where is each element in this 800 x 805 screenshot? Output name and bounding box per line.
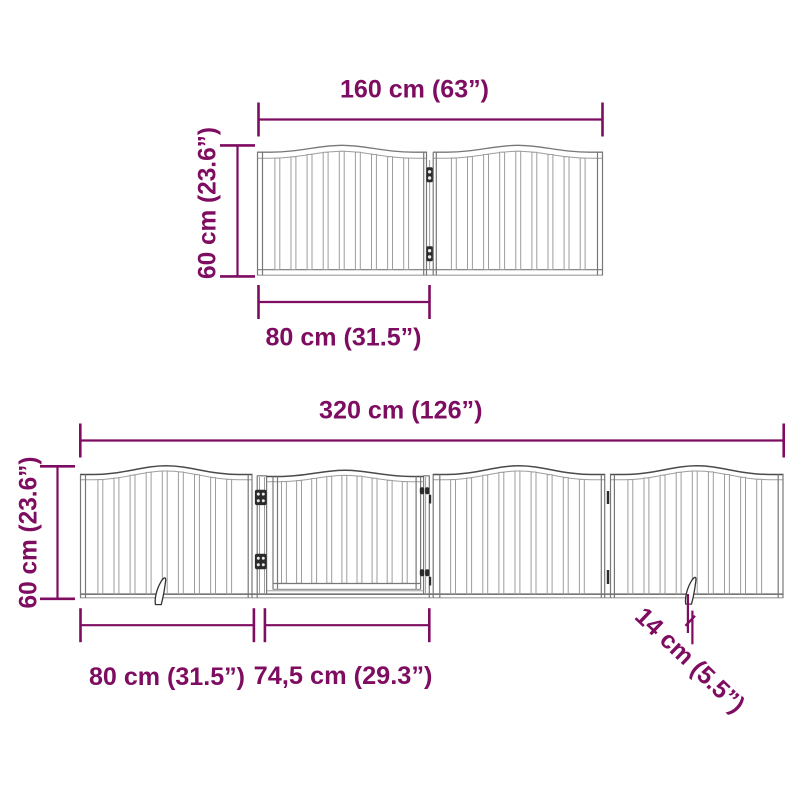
svg-text:60 cm (23.6”): 60 cm (23.6”) (15, 457, 43, 609)
svg-text:80 cm (31.5”): 80 cm (31.5”) (266, 324, 422, 352)
svg-text:160 cm (63”): 160 cm (63”) (340, 76, 489, 104)
svg-text:80 cm (31.5”): 80 cm (31.5”) (89, 663, 245, 691)
svg-text:60 cm (23.6”): 60 cm (23.6”) (194, 127, 222, 279)
svg-text:320 cm (126”): 320 cm (126”) (319, 397, 483, 425)
svg-text:74,5 cm (29.3”): 74,5 cm (29.3”) (254, 662, 433, 690)
